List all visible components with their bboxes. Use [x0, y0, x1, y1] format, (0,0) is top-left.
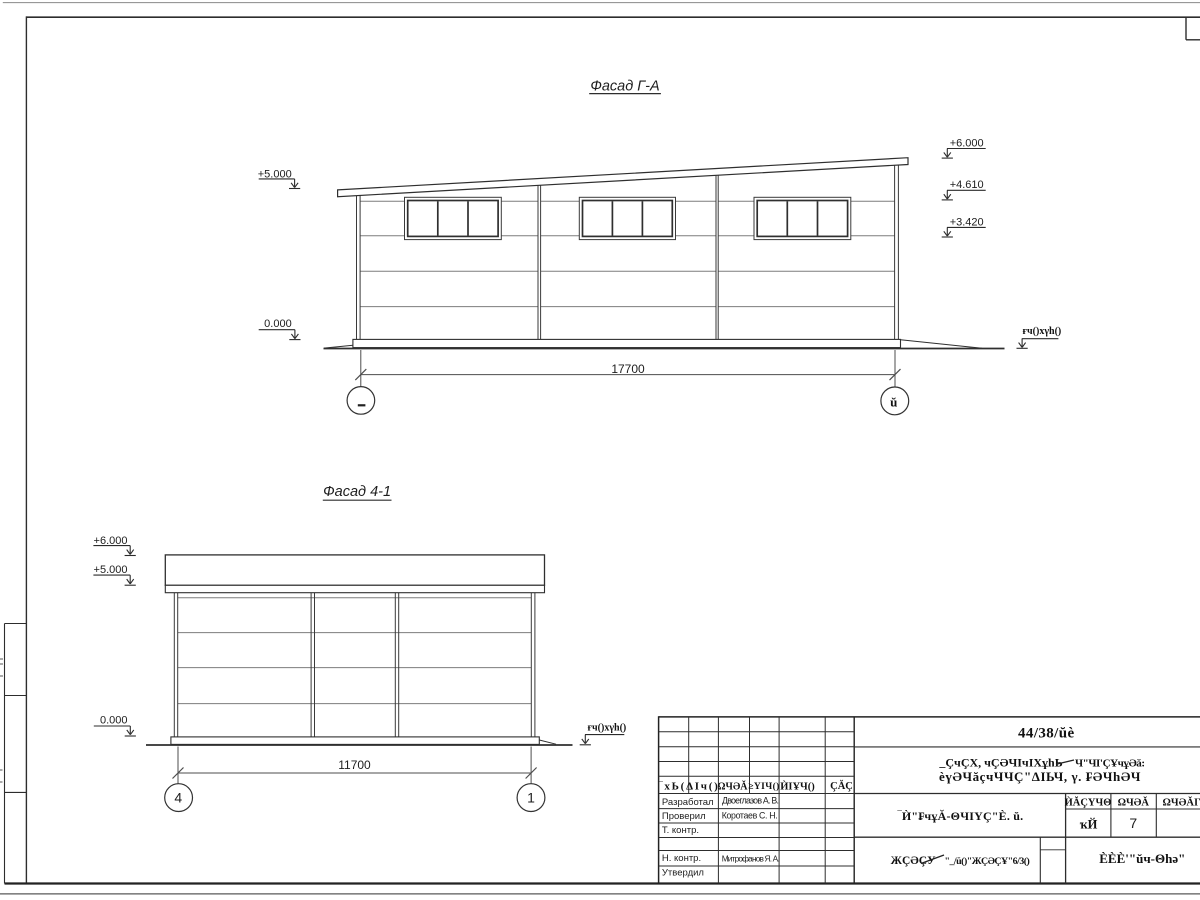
svg-text:Разработал: Разработал	[662, 797, 714, 808]
svg-text:Двоеглазов А. В.: Двоеглазов А. В.	[722, 796, 779, 806]
svg-text:+6.000: +6.000	[950, 137, 984, 149]
svg-text:Ч"ЧΙ'ÇҰчұӘă:: Ч"ЧΙ'ÇҰчұӘă:	[1075, 758, 1145, 770]
svg-text:Т. контр.: Т. контр.	[662, 825, 699, 836]
svg-text:‾Ѝ"₣чұĂ-ΘЧΙҮÇ"È. ŭ.: ‾Ѝ"₣чұĂ-ΘЧΙҮÇ"È. ŭ.	[897, 809, 1024, 823]
svg-text:èүӘЧăçчЧЧÇ"ΔΙЬЧ, γ. ₣ӘЧhӘЧ: èүӘЧăçчЧЧÇ"ΔΙЬЧ, γ. ₣ӘЧhӘЧ	[939, 769, 1141, 784]
svg-text:ғч()хγh(): ғч()хγh()	[588, 723, 627, 734]
svg-text:7: 7	[1129, 815, 1137, 831]
svg-text:0.000: 0.000	[264, 318, 292, 330]
svg-text:Фасад Г-А: Фасад Г-А	[590, 78, 659, 94]
svg-text:17700: 17700	[611, 362, 645, 376]
svg-text:ŭ: ŭ	[890, 394, 897, 409]
svg-text:ΩЧӘĂΙY: ΩЧӘĂΙY	[1163, 797, 1200, 809]
svg-text:+5.000: +5.000	[94, 564, 128, 576]
svg-text:ΩЧӘĂ: ΩЧӘĂ	[718, 780, 749, 792]
svg-text:ғч()хγh(): ғч()хγh()	[1023, 326, 1062, 337]
svg-text:+3.420: +3.420	[950, 217, 984, 229]
svg-text:44/38/ŭè: 44/38/ŭè	[1018, 726, 1075, 742]
svg-text:"_/ŭ()"ЖÇӘÇҰ"6/3(): "_/ŭ()"ЖÇӘÇҰ"6/3()	[945, 856, 1030, 867]
svg-text:+5.000: +5.000	[258, 168, 292, 180]
svg-text:ЍĂÇҮЧΘ: ЍĂÇҮЧΘ	[1065, 797, 1112, 809]
svg-text:ÇĂÇ: ÇĂÇ	[830, 780, 853, 792]
svg-text:4: 4	[174, 790, 182, 806]
svg-text:_ÇчÇХ, чÇӘЧΙчΙХұhЬ: _ÇчÇХ, чÇӘЧΙчΙХұhЬ	[938, 756, 1062, 770]
svg-text:Проверил: Проверил	[662, 811, 706, 822]
svg-text:Коротаев С. Н.: Коротаев С. Н.	[722, 811, 778, 821]
svg-text:ЍΙҰЧ(): ЍΙҰЧ()	[780, 781, 815, 793]
svg-text:Фасад 4-1: Фасад 4-1	[323, 484, 391, 500]
svg-text:≥YΙЧ(): ≥YΙЧ()	[748, 781, 779, 792]
svg-text:Утвердил: Утвердил	[662, 868, 704, 879]
svg-text:ΩЧӘĂ: ΩЧӘĂ	[1118, 797, 1150, 809]
svg-text:Митрофанов Я. А.: Митрофанов Я. А.	[722, 853, 780, 863]
svg-text:11700: 11700	[338, 758, 371, 772]
svg-text:+4.610: +4.610	[950, 179, 984, 191]
svg-text:+6.000: +6.000	[94, 535, 128, 547]
svg-text:Н. контр.: Н. контр.	[662, 853, 701, 864]
svg-text:ÈÈÈ'"ŭч-Θhә": ÈÈÈ'"ŭч-Θhә"	[1099, 851, 1185, 866]
svg-text:0.000: 0.000	[100, 715, 128, 727]
svg-text:1: 1	[527, 790, 535, 806]
svg-text:ҡЙ: ҡЙ	[1080, 818, 1098, 832]
svg-text:‾хЬ(ΔΙч(): ‾хЬ(ΔΙч()	[658, 780, 720, 792]
